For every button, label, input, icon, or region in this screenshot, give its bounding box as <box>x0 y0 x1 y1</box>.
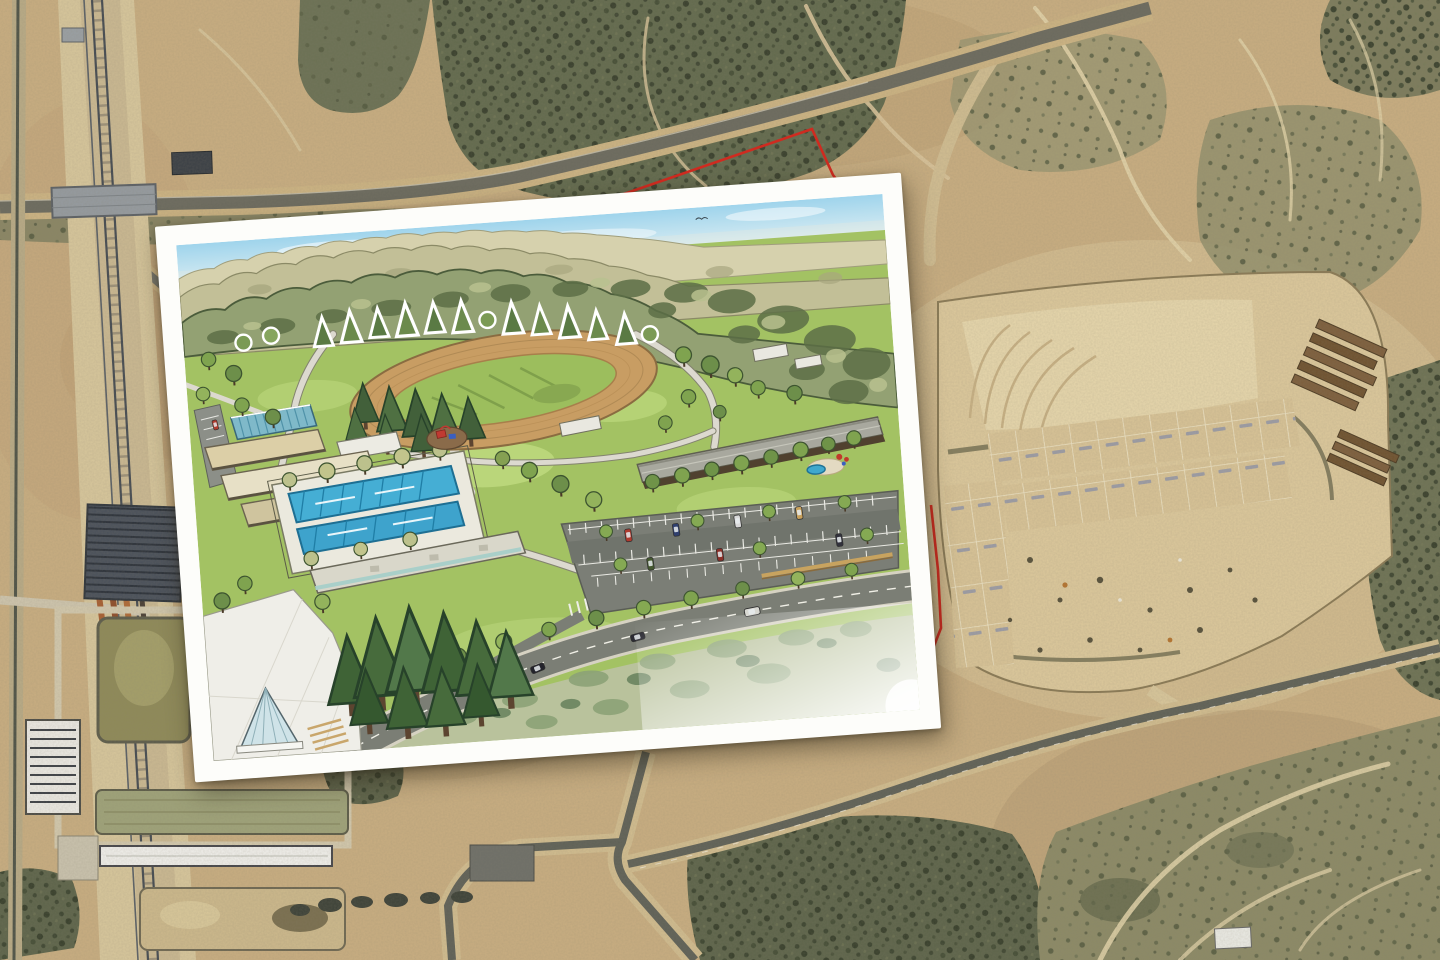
watercolor-fade <box>635 603 920 730</box>
rendering-card <box>155 173 941 783</box>
splash-pool <box>807 464 826 474</box>
park-rendering <box>176 194 920 761</box>
composite-image <box>0 0 1440 960</box>
